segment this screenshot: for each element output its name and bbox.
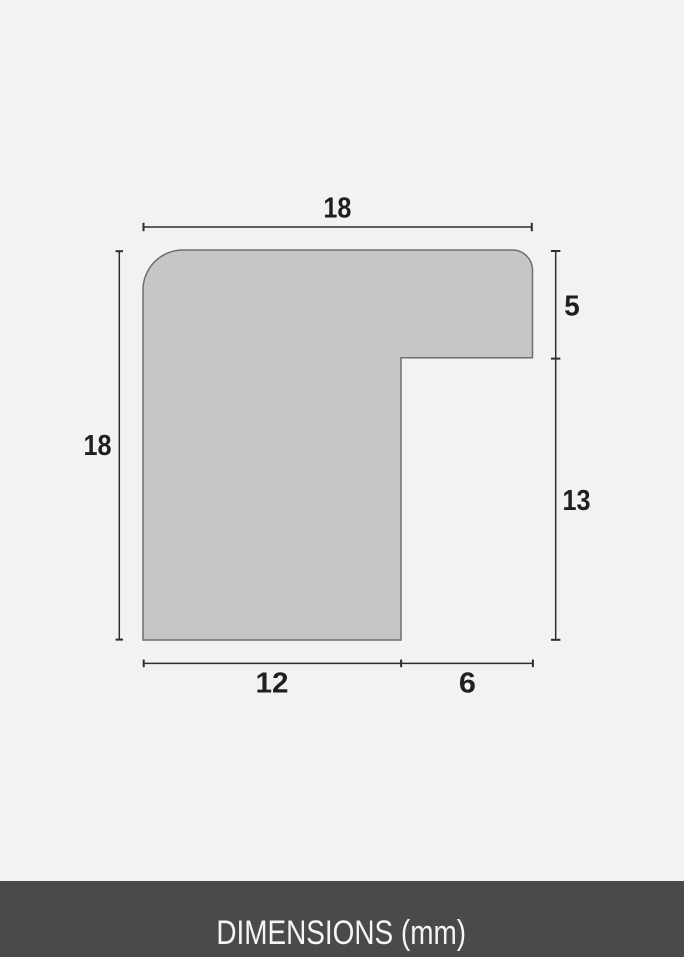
svg-text:18: 18: [84, 430, 112, 462]
svg-text:5: 5: [564, 291, 580, 323]
svg-text:6: 6: [459, 668, 476, 700]
svg-text:18: 18: [323, 193, 351, 225]
svg-text:13: 13: [563, 485, 591, 517]
svg-text:12: 12: [256, 668, 289, 700]
svg-text:DIMENSIONS (mm): DIMENSIONS (mm): [216, 914, 466, 952]
